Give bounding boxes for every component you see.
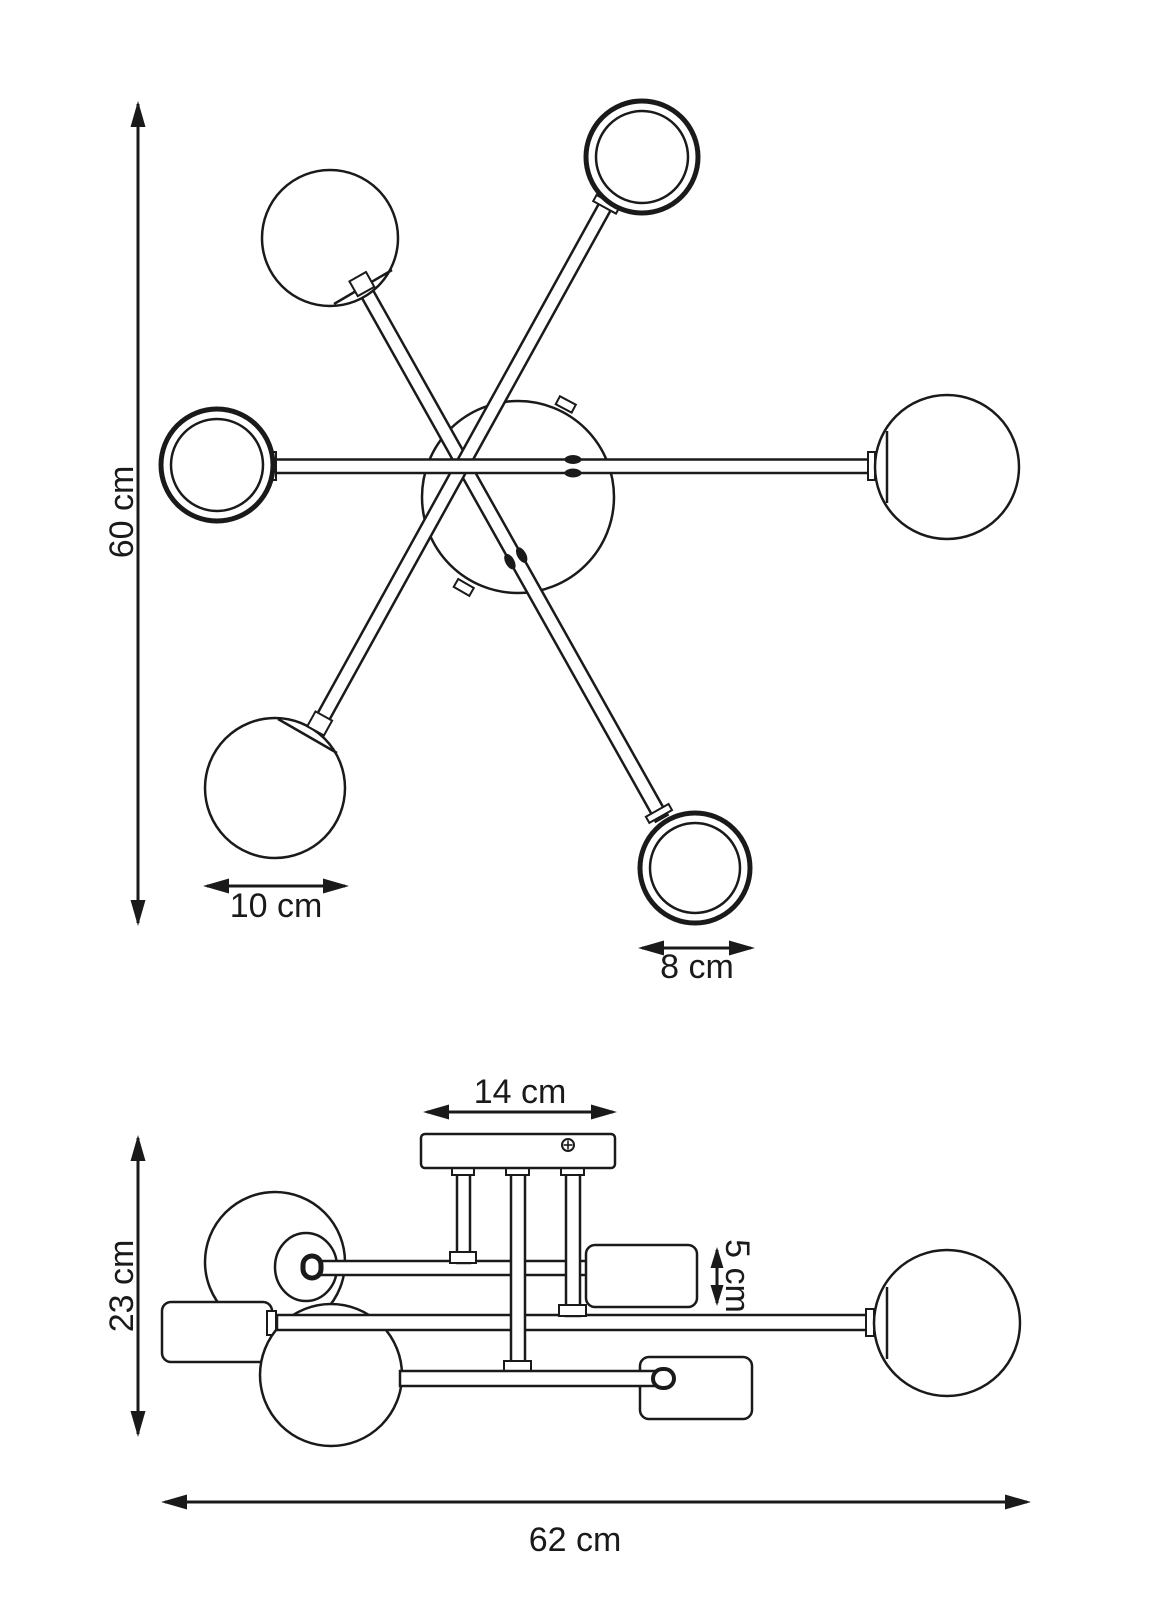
- arm-joint-screw: [565, 455, 582, 464]
- lower-arm-socket: [653, 1369, 674, 1388]
- dimension-width-62cm: 62 cm: [161, 1495, 1031, 1560]
- upper-arm-socket: [303, 1256, 321, 1278]
- stem-right: [566, 1168, 580, 1316]
- arrowhead-left-icon: [423, 1105, 449, 1120]
- arrowhead-down-icon: [131, 1411, 146, 1437]
- stem-collar: [559, 1305, 586, 1316]
- dimension-label: 60 cm: [103, 466, 141, 559]
- dimension-label: 62 cm: [529, 1521, 622, 1559]
- dimension-label: 10 cm: [230, 887, 323, 925]
- lower-arm: [400, 1371, 662, 1386]
- dimension-shade-5cm: 5 cm: [711, 1239, 757, 1313]
- arm-joint-screw: [565, 469, 582, 478]
- dimension-canopy-14cm: 14 cm: [423, 1073, 617, 1120]
- arrowhead-down-icon: [131, 900, 146, 926]
- stem-left: [457, 1168, 470, 1263]
- stem-collar: [450, 1252, 476, 1263]
- lamp-arm-diagonal-1: [344, 267, 673, 825]
- dimension-label: 23 cm: [103, 1240, 141, 1333]
- shade-upper-right: [586, 1245, 697, 1307]
- arrowhead-up-icon: [131, 1135, 146, 1161]
- shade-left: [162, 1302, 272, 1362]
- dimension-ring-8cm: 8 cm: [638, 941, 755, 987]
- ceiling-canopy: [421, 1134, 615, 1168]
- glass-sphere-top-left: [262, 170, 398, 306]
- arrowhead-left-icon: [161, 1495, 187, 1510]
- glass-ring-bottom-right: [640, 813, 750, 923]
- arrowhead-up-icon: [131, 101, 146, 127]
- glass-sphere-right: [875, 395, 1019, 539]
- dimension-label: 5 cm: [718, 1239, 756, 1313]
- arrowhead-right-icon: [591, 1105, 617, 1120]
- dimension-sphere-10cm: 10 cm: [203, 879, 349, 926]
- dimension-height-23cm: 23 cm: [103, 1135, 146, 1437]
- lamp-arm-horizontal: [269, 452, 880, 480]
- dimension-label: 14 cm: [474, 1073, 567, 1111]
- top-view: 60 cm 10 cm 8 cm: [103, 101, 1019, 986]
- glass-sphere-bottom-left: [205, 718, 345, 858]
- arrowhead-right-icon: [323, 879, 349, 894]
- drawing-canvas: 60 cm 10 cm 8 cm: [0, 0, 1157, 1600]
- glass-ring-left: [161, 409, 273, 521]
- glass-ring-top-right: [586, 101, 698, 213]
- side-view: 5 cm 14 cm 23 cm 62 cm: [103, 1073, 1031, 1559]
- glass-sphere-side-right: [874, 1250, 1020, 1396]
- dimension-height-60cm: 60 cm: [103, 101, 146, 926]
- arrowhead-left-icon: [203, 879, 229, 894]
- arrowhead-right-icon: [1005, 1495, 1031, 1510]
- dimension-label: 8 cm: [660, 948, 734, 986]
- lamp-dimension-drawing: 60 cm 10 cm 8 cm: [0, 0, 1157, 1600]
- stem-center: [511, 1168, 525, 1372]
